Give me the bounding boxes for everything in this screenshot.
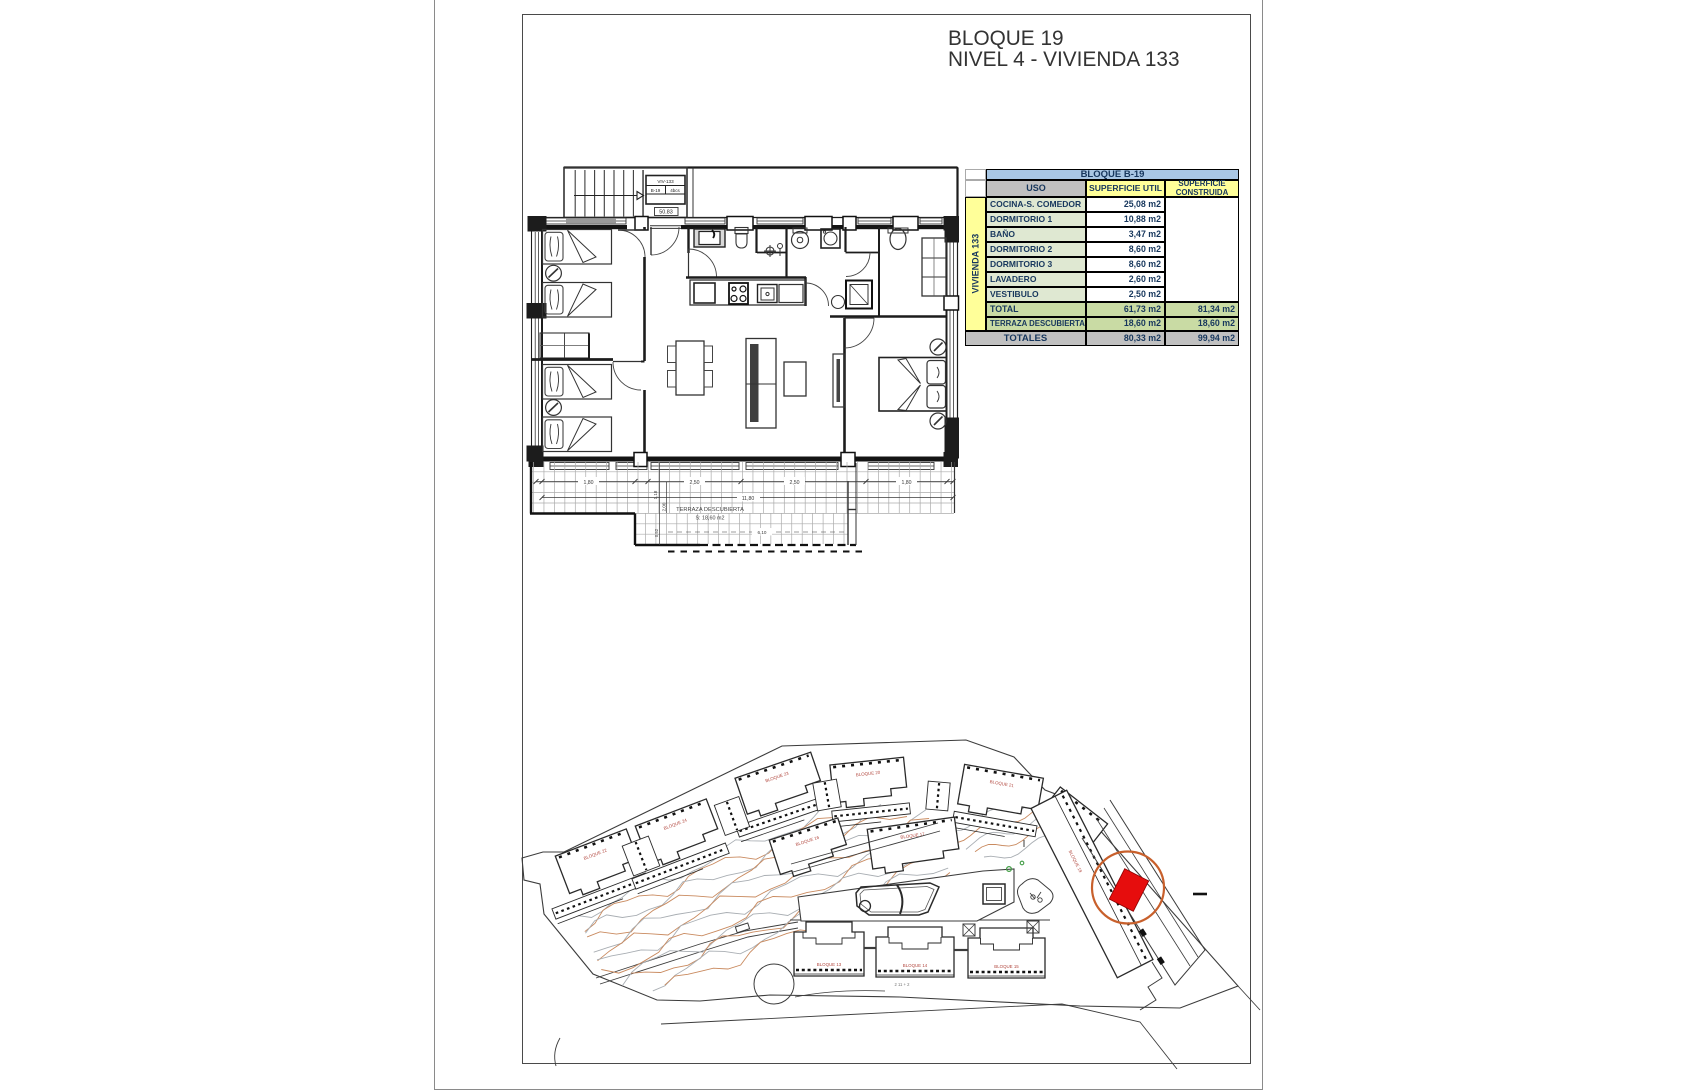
svg-text:BLOQUE 13: BLOQUE 13 [817, 962, 842, 967]
svg-text:2 11 + 2: 2 11 + 2 [895, 982, 911, 987]
svg-text:BLOQUE 14: BLOQUE 14 [903, 963, 928, 968]
svg-text:BLOQUE 15: BLOQUE 15 [994, 964, 1019, 969]
